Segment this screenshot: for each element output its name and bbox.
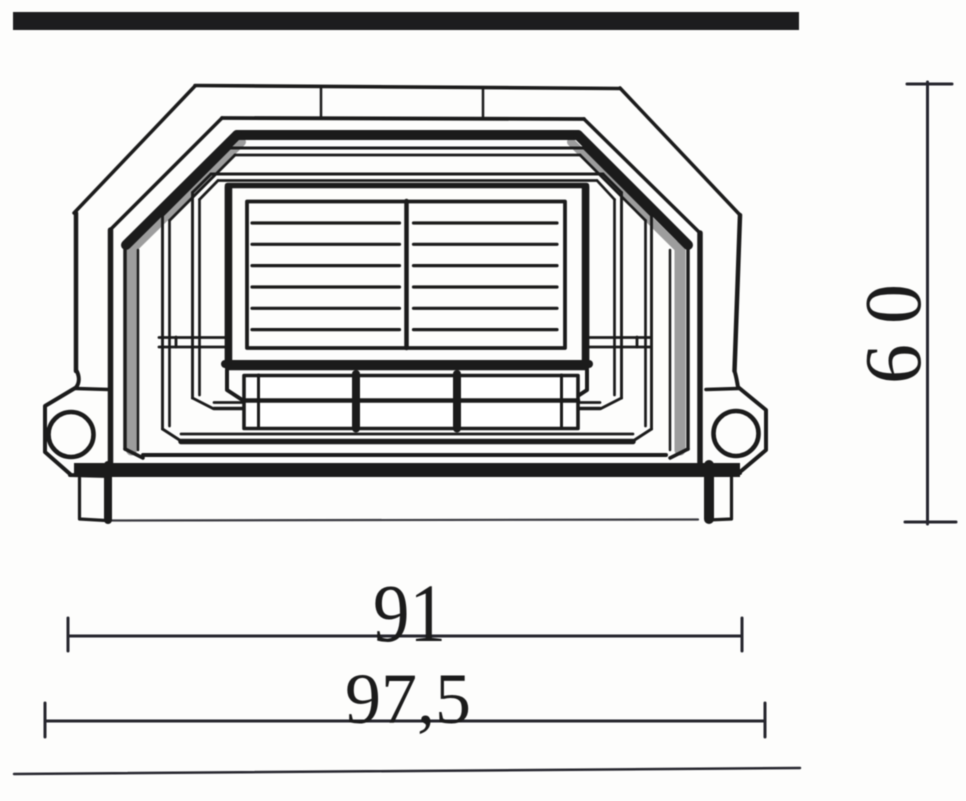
svg-text:97,5: 97,5: [345, 659, 471, 739]
svg-text:60: 60: [850, 264, 938, 384]
svg-text:91: 91: [373, 567, 446, 659]
